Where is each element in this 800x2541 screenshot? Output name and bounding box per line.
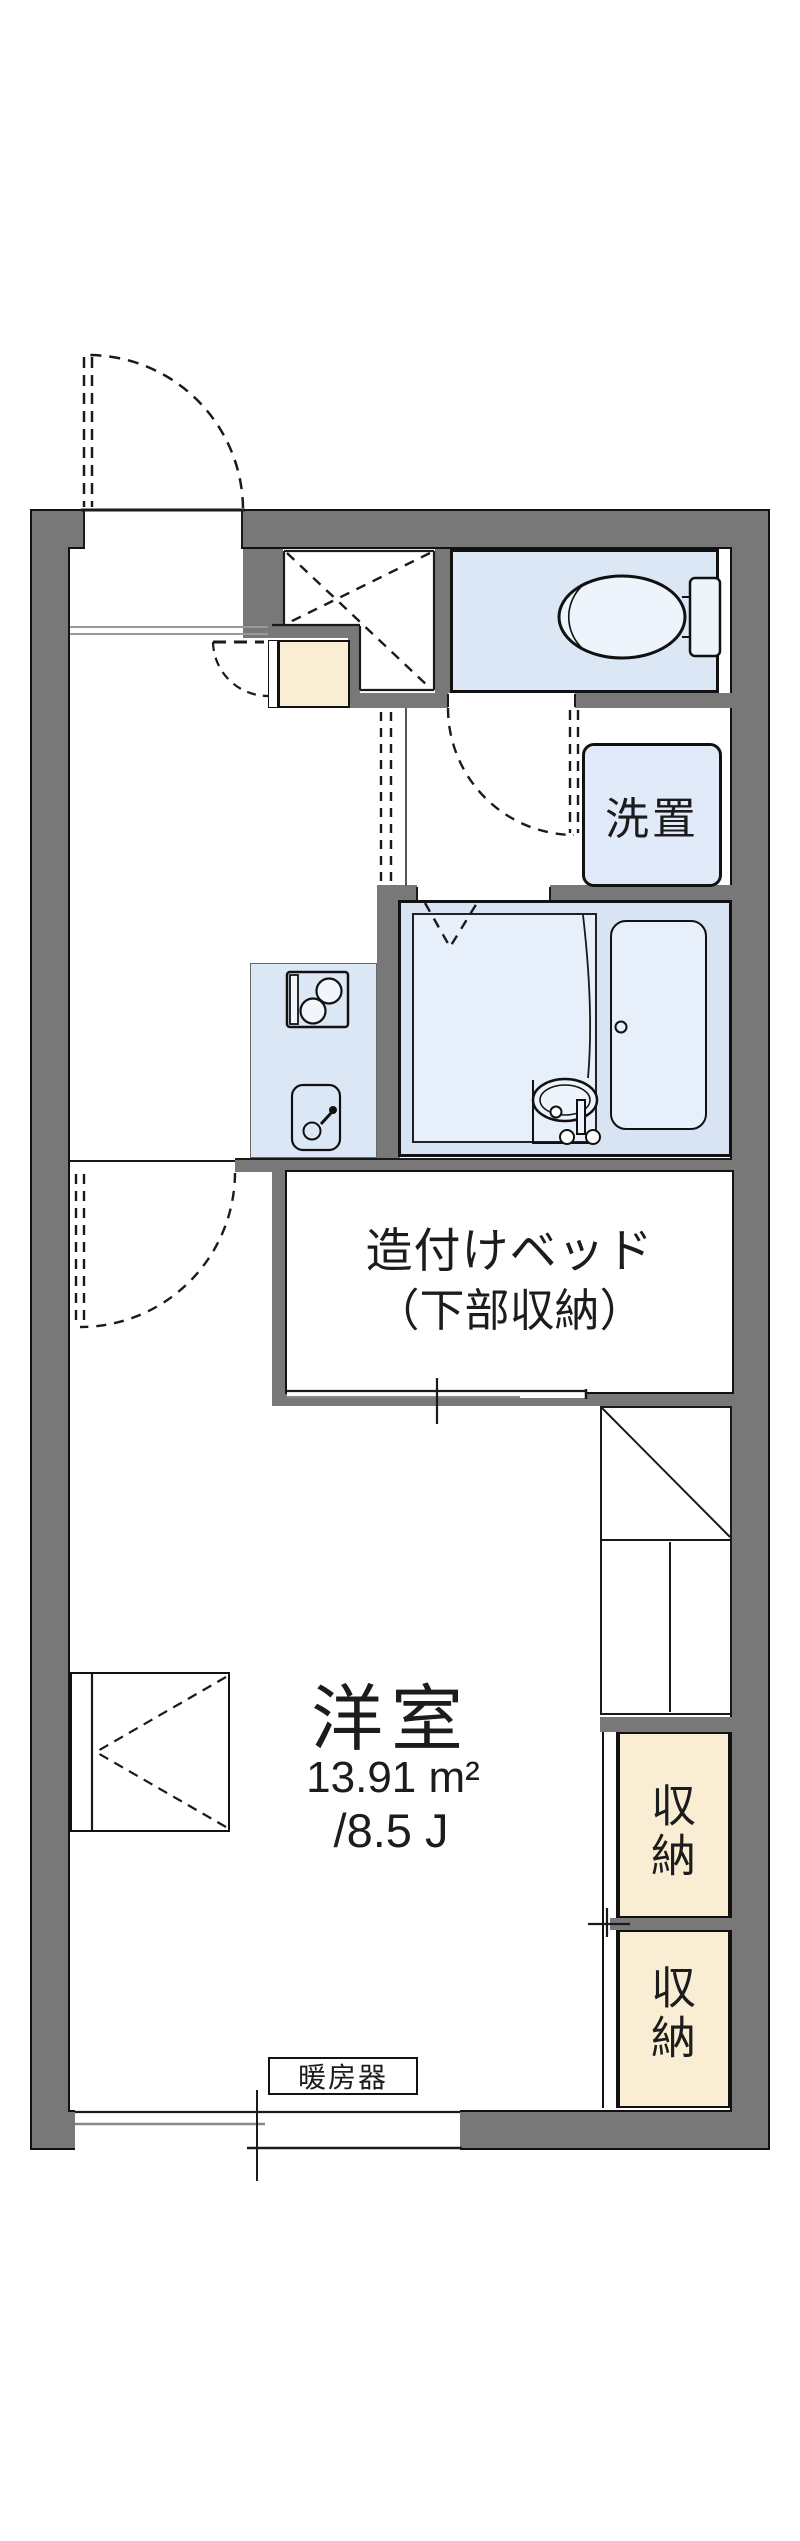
wall-segment <box>270 625 360 638</box>
bed-room-label: 造付けベッド （下部収納） <box>285 1222 734 1342</box>
bed-sliding-door-strip <box>287 1389 586 1398</box>
heater-label: 暖房器 <box>298 2056 388 2096</box>
wall-segment <box>350 693 448 708</box>
bed-room-label-line1: 造付けベッド <box>285 1222 734 1280</box>
shoe-cabinet-door <box>268 640 278 708</box>
storage-upper-label: 収納 <box>646 1782 702 1882</box>
shelf-cell-bottom <box>600 1539 732 1715</box>
bottom-window-opening <box>75 2110 460 2152</box>
kitchen-counter <box>250 963 377 1158</box>
room-tatami-label: /8.5 J <box>241 1803 541 1858</box>
bay-window <box>70 1672 230 1832</box>
heater-box: 暖房器 <box>268 2057 418 2095</box>
toilet-room <box>450 549 719 693</box>
shoe-cabinet <box>278 640 350 708</box>
wall-segment <box>377 902 400 1158</box>
shelf-cell-top <box>600 1406 732 1541</box>
room-area-label: 13.91 m² <box>243 1753 543 1803</box>
wall-segment <box>575 693 732 708</box>
bathroom-washing-area <box>412 913 597 1143</box>
entrance-door-leaf-line <box>84 357 92 507</box>
bathtub <box>610 920 707 1130</box>
storage-lower-label: 収納 <box>646 1964 702 2064</box>
entrance-door-swing-arc <box>88 355 243 508</box>
wall-segment <box>610 1918 732 1930</box>
wall-segment <box>435 549 450 693</box>
floorplan-canvas: 洗置 暖房器 <box>0 0 800 2541</box>
wall-segment <box>600 1717 732 1732</box>
room-name-label: 洋室 <box>241 1660 541 1765</box>
bed-room-label-line2: （下部収納） <box>285 1280 734 1342</box>
washer-space-label: 洗置 <box>605 783 699 847</box>
washer-space-box: 洗置 <box>582 743 722 887</box>
entrance-opening <box>83 507 243 551</box>
